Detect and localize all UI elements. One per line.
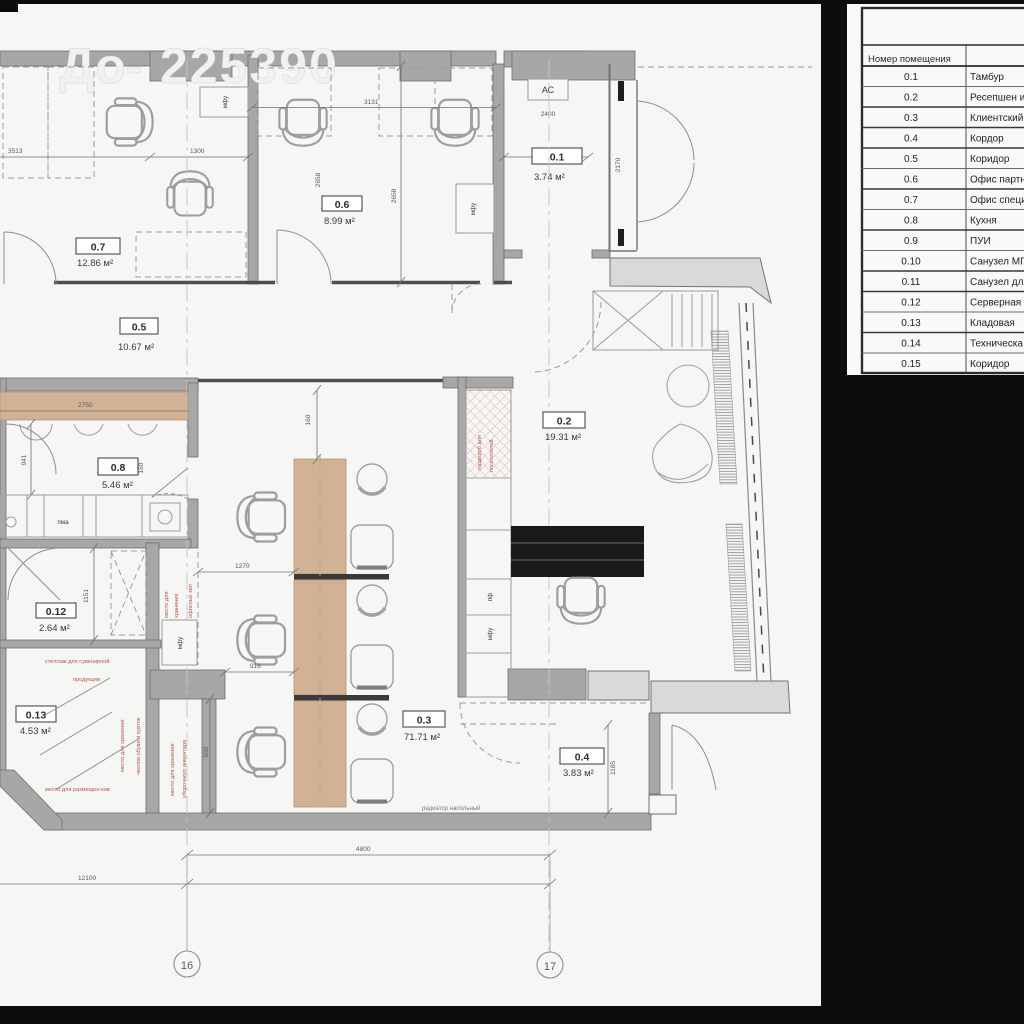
svg-text:1151: 1151 [83, 589, 90, 603]
svg-text:0.1: 0.1 [550, 152, 565, 164]
svg-text:0.14: 0.14 [901, 339, 921, 350]
svg-text:0.5: 0.5 [904, 154, 918, 165]
svg-text:Кордор: Кордор [970, 134, 1004, 145]
svg-text:19.31 м²: 19.31 м² [545, 432, 581, 443]
svg-text:2658: 2658 [315, 172, 322, 187]
svg-text:916: 916 [250, 663, 261, 670]
svg-text:место для хранения: место для хранения [120, 720, 126, 773]
svg-text:Офис специ: Офис специ [970, 194, 1024, 206]
svg-text:0.1: 0.1 [904, 72, 918, 83]
svg-text:12.86 м²: 12.86 м² [77, 258, 113, 269]
svg-text:0.3: 0.3 [904, 113, 918, 124]
svg-text:стеллаж для сувенирной: стеллаж для сувенирной [45, 658, 110, 665]
svg-text:место для размещен-ков: место для размещен-ков [45, 787, 110, 793]
svg-text:5.46 м²: 5.46 м² [102, 480, 133, 491]
svg-text:0.13: 0.13 [901, 318, 921, 329]
svg-text:посетителей: посетителей [488, 440, 495, 472]
svg-text:0.13: 0.13 [26, 710, 47, 722]
svg-text:941: 941 [21, 454, 28, 465]
svg-text:2658: 2658 [391, 188, 398, 203]
svg-text:Санузел МГ: Санузел МГ [970, 257, 1024, 268]
svg-text:17: 17 [544, 961, 556, 973]
svg-text:0.3: 0.3 [417, 715, 432, 727]
svg-text:71.71 м²: 71.71 м² [404, 732, 440, 743]
svg-text:4.53 м²: 4.53 м² [20, 726, 51, 737]
svg-text:0.8: 0.8 [111, 462, 126, 474]
svg-text:место для хранения: место для хранения [170, 744, 176, 797]
svg-text:0.7: 0.7 [91, 242, 106, 254]
svg-text:мфу: мфу [470, 202, 477, 215]
svg-text:160: 160 [138, 462, 145, 473]
svg-text:500: 500 [203, 746, 210, 757]
svg-text:ПУИ: ПУИ [970, 236, 991, 247]
svg-text:2.64 м²: 2.64 м² [39, 623, 70, 634]
svg-text:чехлов обуви и курток: чехлов обуви и курток [136, 717, 142, 775]
svg-text:1185: 1185 [610, 761, 617, 775]
svg-text:0.5: 0.5 [132, 322, 147, 334]
svg-text:0.2: 0.2 [904, 93, 918, 104]
svg-text:Кладовая: Кладовая [970, 318, 1015, 329]
svg-text:гардероб для: гардероб для [477, 435, 483, 470]
svg-text:10.67 м²: 10.67 м² [118, 342, 154, 353]
svg-text:хранения: хранения [174, 594, 180, 618]
svg-text:160: 160 [305, 414, 312, 425]
svg-text:0.4: 0.4 [575, 752, 590, 764]
svg-text:0.6: 0.6 [904, 175, 918, 186]
svg-text:0.12: 0.12 [901, 298, 921, 309]
svg-text:0.4: 0.4 [904, 134, 918, 145]
svg-text:0.2: 0.2 [557, 416, 572, 428]
svg-text:Ресепшен и: Ресепшен и [970, 93, 1024, 104]
svg-text:Номер помещения: Номер помещения [868, 54, 951, 65]
svg-text:12100: 12100 [78, 875, 96, 882]
svg-text:продукции: продукции [73, 677, 100, 683]
svg-text:1300: 1300 [190, 148, 205, 155]
svg-text:1270: 1270 [235, 563, 250, 570]
svg-text:АС: АС [542, 85, 555, 95]
svg-text:Клиентский: Клиентский [970, 113, 1023, 124]
svg-text:3513: 3513 [8, 148, 23, 155]
svg-text:0.6: 0.6 [335, 199, 350, 211]
svg-text:0.7: 0.7 [904, 195, 918, 206]
svg-text:мфу: мфу [487, 627, 494, 640]
svg-text:0.15: 0.15 [901, 359, 921, 370]
svg-text:0.10: 0.10 [901, 257, 921, 268]
svg-text:мфу: мфу [177, 636, 184, 649]
svg-text:0.11: 0.11 [902, 277, 921, 288]
svg-text:Серверная: Серверная [970, 298, 1021, 309]
svg-text:8.99 м²: 8.99 м² [324, 216, 355, 227]
svg-text:офисных зап: офисных зап [188, 584, 194, 618]
svg-text:Офис партн: Офис партн [970, 174, 1024, 186]
svg-text:уборочного инвентаря: уборочного инвентаря [182, 740, 188, 798]
svg-text:Санузел для: Санузел для [970, 277, 1024, 288]
svg-text:0.9: 0.9 [904, 236, 918, 247]
svg-text:2170: 2170 [615, 157, 622, 172]
svg-text:Коридор: Коридор [970, 359, 1010, 370]
svg-text:Коридор: Коридор [970, 154, 1010, 165]
svg-text:3131: 3131 [364, 99, 379, 106]
svg-text:0.12: 0.12 [46, 606, 67, 618]
svg-text:До-: До- [59, 38, 142, 94]
svg-text:пф: пф [487, 593, 494, 602]
svg-text:2400: 2400 [541, 111, 556, 118]
svg-text:место для: место для [164, 592, 170, 618]
svg-text:пма: пма [57, 519, 69, 526]
svg-text:16: 16 [181, 960, 193, 972]
svg-text:4800: 4800 [356, 846, 371, 853]
svg-text:радиатор напольный: радиатор напольный [422, 805, 480, 812]
svg-text:2750: 2750 [78, 402, 93, 409]
svg-text:мфу: мфу [222, 95, 229, 108]
svg-text:0.8: 0.8 [904, 216, 918, 227]
svg-text:Кухня: Кухня [970, 216, 997, 227]
svg-text:Техническа: Техническа [970, 339, 1023, 350]
svg-text:Тамбур: Тамбур [970, 71, 1004, 83]
svg-text:3.83 м²: 3.83 м² [563, 768, 594, 779]
